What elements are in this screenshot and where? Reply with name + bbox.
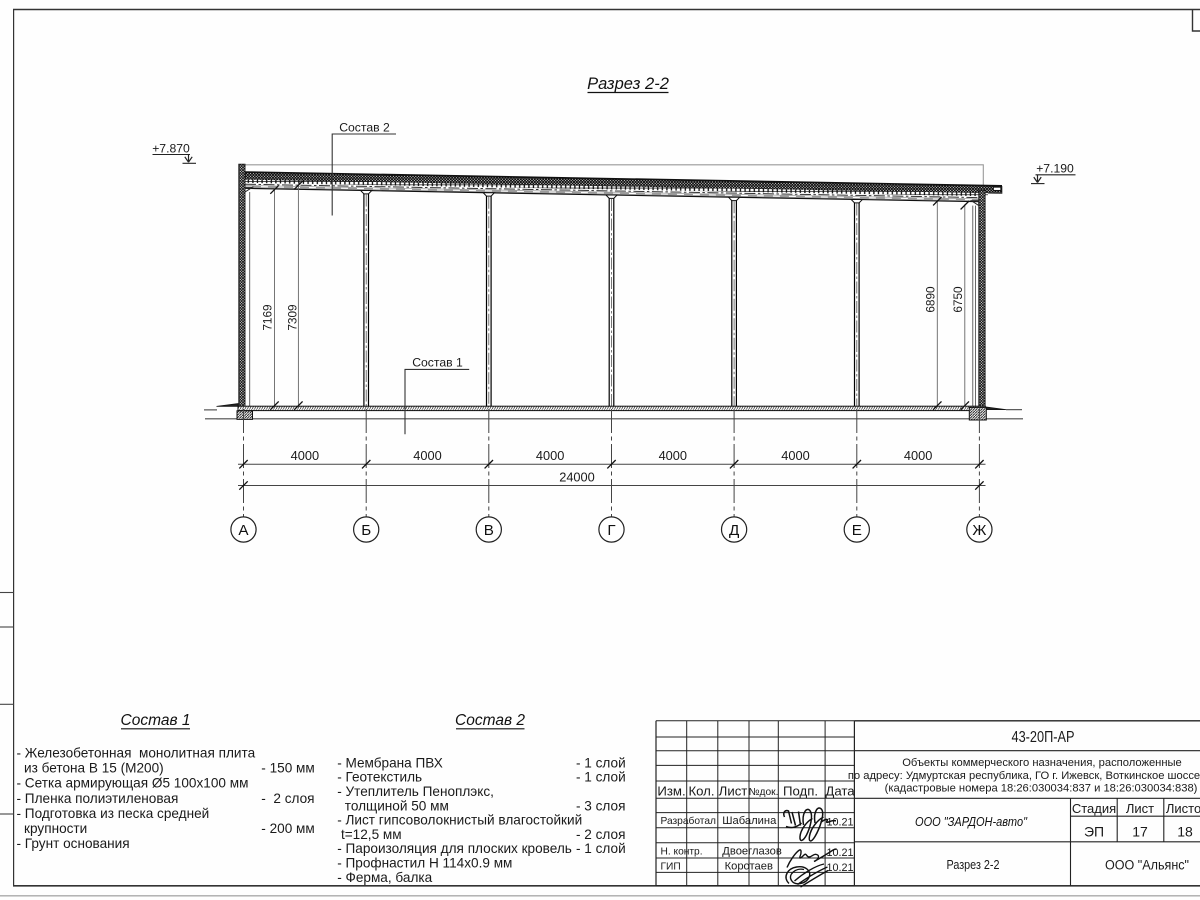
svg-text:- Пленка полиэтиленовая: - Пленка полиэтиленовая <box>17 791 179 806</box>
svg-text:Д: Д <box>729 522 739 539</box>
svg-text:толщиной 50 мм: толщиной 50 мм <box>337 798 449 813</box>
svg-text:- Лист гипсоволокнистый влагос: - Лист гипсоволокнистый влагостойкий <box>337 813 582 828</box>
svg-text:Б: Б <box>361 522 371 539</box>
svg-text:4000: 4000 <box>291 448 319 463</box>
svg-text:Изм.: Изм. <box>657 783 685 798</box>
svg-text:- 150 мм: - 150 мм <box>261 761 314 776</box>
svg-text:- Железобетонная монолитная п: - Железобетонная монолитная плита <box>17 746 256 761</box>
svg-text:10.21: 10.21 <box>826 862 853 874</box>
svg-text:№док.: №док. <box>749 787 779 798</box>
svg-text:Лист: Лист <box>1126 801 1154 816</box>
svg-text:t=12,5 мм: t=12,5 мм <box>337 827 401 842</box>
svg-text:4000: 4000 <box>904 448 932 463</box>
svg-text:- 1 слой: - 1 слой <box>576 755 626 770</box>
svg-text:Н. контр.: Н. контр. <box>661 847 703 858</box>
svg-text:10.21: 10.21 <box>826 817 853 829</box>
svg-text:Кол.: Кол. <box>688 783 714 798</box>
svg-text:- Пароизоляция для плоских кро: - Пароизоляция для плоских кровель <box>337 841 572 856</box>
svg-text:Состав 2: Состав 2 <box>455 712 525 729</box>
svg-text:Состав 1: Состав 1 <box>412 356 463 370</box>
svg-text:Разработал: Разработал <box>661 815 717 827</box>
svg-text:Е: Е <box>852 522 862 539</box>
svg-text:Коротаев: Коротаев <box>725 861 773 873</box>
svg-text:Шабалина: Шабалина <box>722 815 777 827</box>
svg-text:- 200 мм: - 200 мм <box>261 821 314 836</box>
svg-text:Состав 1: Состав 1 <box>121 712 191 729</box>
svg-text:4000: 4000 <box>659 448 687 463</box>
svg-text:- 1 слой: - 1 слой <box>576 841 626 856</box>
svg-text:Г: Г <box>607 522 615 539</box>
svg-text:Стадия: Стадия <box>1072 801 1116 816</box>
svg-text:ООО "Альянс": ООО "Альянс" <box>1105 857 1189 873</box>
svg-text:6890: 6890 <box>923 286 937 313</box>
svg-text:ЭП: ЭП <box>1084 824 1104 840</box>
svg-text:Разрез 2-2: Разрез 2-2 <box>947 858 1000 872</box>
svg-text:- 2 слоя: - 2 слоя <box>576 827 625 842</box>
svg-text:- Геотекстиль: - Геотекстиль <box>337 770 422 785</box>
svg-text:из бетона В 15 (М200): из бетона В 15 (М200) <box>17 761 164 776</box>
svg-text:4000: 4000 <box>781 448 809 463</box>
svg-text:Лист: Лист <box>719 783 748 798</box>
svg-text:- 2 слоя: - 2 слоя <box>261 791 314 806</box>
svg-text:+7.190: +7.190 <box>1036 162 1074 176</box>
svg-text:Ж: Ж <box>972 522 986 539</box>
svg-text:Листов: Листов <box>1166 801 1200 816</box>
svg-text:А: А <box>238 522 249 539</box>
svg-text:- Ферма, балка: - Ферма, балка <box>337 870 432 885</box>
svg-text:43-20П-АР: 43-20П-АР <box>1012 729 1075 746</box>
svg-text:7169: 7169 <box>261 304 275 330</box>
svg-text:(кадастровые номера 18:26:0300: (кадастровые номера 18:26:030034:837 и 1… <box>885 783 1198 795</box>
svg-text:ООО "ЗАРДОН-авто": ООО "ЗАРДОН-авто" <box>915 815 1027 829</box>
svg-text:по адресу: Удмуртская республи: по адресу: Удмуртская республика, ГО г. … <box>848 770 1200 782</box>
svg-text:- Профнастил Н 114х0.9 мм: - Профнастил Н 114х0.9 мм <box>337 856 512 871</box>
svg-text:17: 17 <box>1132 824 1148 840</box>
svg-text:4000: 4000 <box>413 448 441 463</box>
svg-text:18: 18 <box>1177 824 1193 840</box>
svg-text:Состав 2: Состав 2 <box>339 121 390 135</box>
svg-text:- 3 слоя: - 3 слоя <box>576 798 625 813</box>
svg-text:- 1 слой: - 1 слой <box>576 770 626 785</box>
svg-text:- Мембрана ПВХ: - Мембрана ПВХ <box>337 755 443 770</box>
svg-text:Двоеглазов: Двоеглазов <box>722 846 782 858</box>
svg-text:7309: 7309 <box>285 304 299 330</box>
svg-text:- Утеплитель Пеноплэкс,: - Утеплитель Пеноплэкс, <box>337 784 494 799</box>
svg-text:+7.870: +7.870 <box>152 142 190 156</box>
svg-text:6750: 6750 <box>951 286 965 313</box>
svg-text:Подп.: Подп. <box>783 783 818 798</box>
svg-text:- Подготовка из песка средней: - Подготовка из песка средней <box>17 806 210 821</box>
svg-text:Объекты коммерческого назначен: Объекты коммерческого назначения, распол… <box>902 757 1182 769</box>
svg-text:Разрез 2-2: Разрез 2-2 <box>587 75 669 93</box>
svg-text:4000: 4000 <box>536 448 564 463</box>
svg-text:крупности: крупности <box>17 821 88 836</box>
svg-text:- Сетка армирующая Ø5 100х100: - Сетка армирующая Ø5 100х100 мм <box>17 776 249 791</box>
svg-text:ГИП: ГИП <box>661 862 681 873</box>
svg-text:24000: 24000 <box>559 469 595 484</box>
svg-text:- Грунт основания: - Грунт основания <box>17 836 130 851</box>
svg-text:Дата: Дата <box>825 783 855 798</box>
svg-text:10.21: 10.21 <box>826 847 853 859</box>
svg-text:В: В <box>484 522 494 539</box>
